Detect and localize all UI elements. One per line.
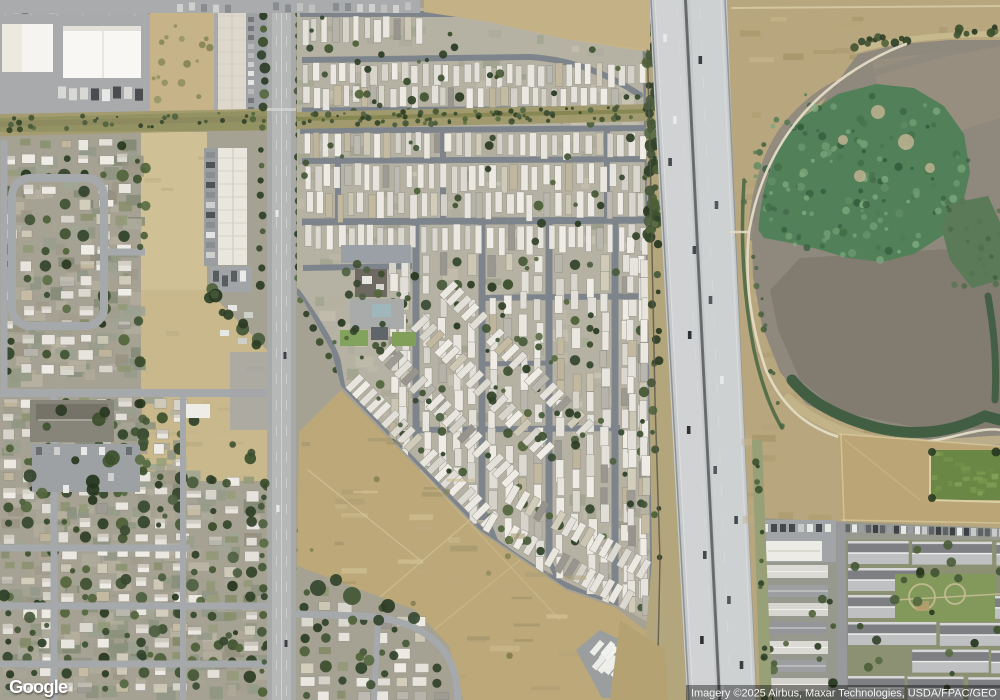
svg-text:Google: Google [9, 676, 68, 697]
svg-text:Imagery ©2025 Airbus, Maxar Te: Imagery ©2025 Airbus, Maxar Technologies… [691, 688, 997, 700]
